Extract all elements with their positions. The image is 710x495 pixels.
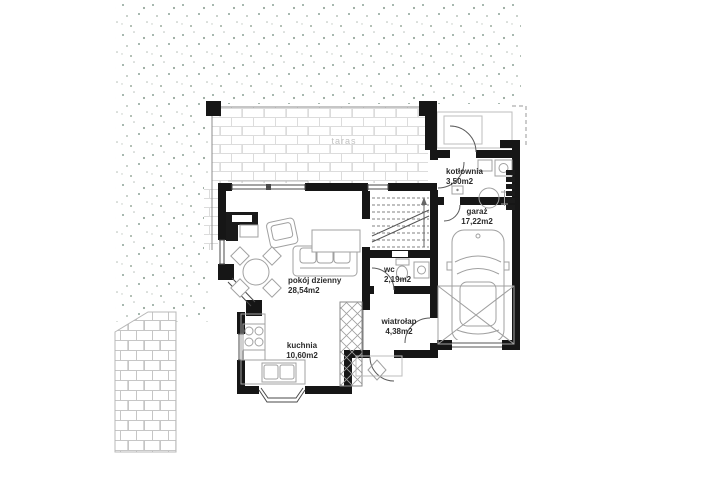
room-label-garaz: garaż 17,22m2	[461, 207, 493, 226]
dining-chair	[231, 279, 249, 297]
window-stairs-north	[368, 183, 388, 191]
terrace-post-left	[206, 101, 221, 116]
garage-door	[452, 340, 502, 350]
boiler-garage-door-arc	[444, 205, 460, 221]
svg-text:kotłownia: kotłownia	[446, 167, 483, 176]
fireplace	[226, 212, 258, 241]
svg-text:wc: wc	[383, 265, 395, 274]
dining-chair	[263, 279, 281, 297]
floor-plan: taras	[0, 0, 710, 495]
entrance-door-arc	[370, 357, 394, 381]
floor-drain	[452, 186, 463, 194]
svg-text:pokój dzienny: pokój dzienny	[288, 276, 342, 285]
room-label-wiatrolap: wiatrołap 4,38m2	[380, 317, 416, 336]
svg-text:2,19m2: 2,19m2	[384, 275, 412, 284]
window-living-west	[219, 240, 225, 264]
wc-sink	[414, 262, 429, 278]
dining-chair	[231, 247, 249, 265]
terrace: taras	[204, 101, 434, 250]
armchair	[266, 217, 299, 248]
dining-set	[231, 247, 281, 297]
dining-chair	[263, 247, 281, 265]
entrance-porch	[356, 356, 402, 380]
svg-text:10,60m2: 10,60m2	[286, 351, 318, 360]
room-label-pokoj-dzienny: pokój dzienny 28,54m2	[288, 276, 342, 295]
svg-text:17,22m2: 17,22m2	[461, 217, 493, 226]
svg-text:4,38m2: 4,38m2	[385, 327, 413, 336]
stove	[243, 324, 265, 350]
built-in-wardrobe	[340, 302, 362, 386]
garage-door-zone	[438, 286, 514, 344]
dining-table	[243, 259, 269, 285]
floor-plan-page: taras	[0, 0, 710, 495]
patio-paving	[115, 312, 176, 452]
svg-text:wiatrołap: wiatrołap	[380, 317, 416, 326]
svg-text:kuchnia: kuchnia	[287, 341, 318, 350]
svg-text:garaż: garaż	[467, 207, 488, 216]
svg-text:3,50m2: 3,50m2	[446, 177, 474, 186]
terrace-label: taras	[331, 136, 356, 146]
kitchen-sink	[262, 363, 296, 382]
svg-text:28,54m2: 28,54m2	[288, 286, 320, 295]
stairs-up-arrow-icon	[421, 197, 427, 205]
staircase	[372, 197, 429, 247]
room-label-wc: wc 2,19m2	[383, 265, 412, 284]
room-label-kotlownia: kotłownia 3,50m2	[446, 167, 483, 186]
window-kitchen-bay	[259, 388, 305, 402]
room-label-kuchnia: kuchnia 10,60m2	[286, 341, 318, 360]
tv-cabinet	[312, 230, 360, 252]
